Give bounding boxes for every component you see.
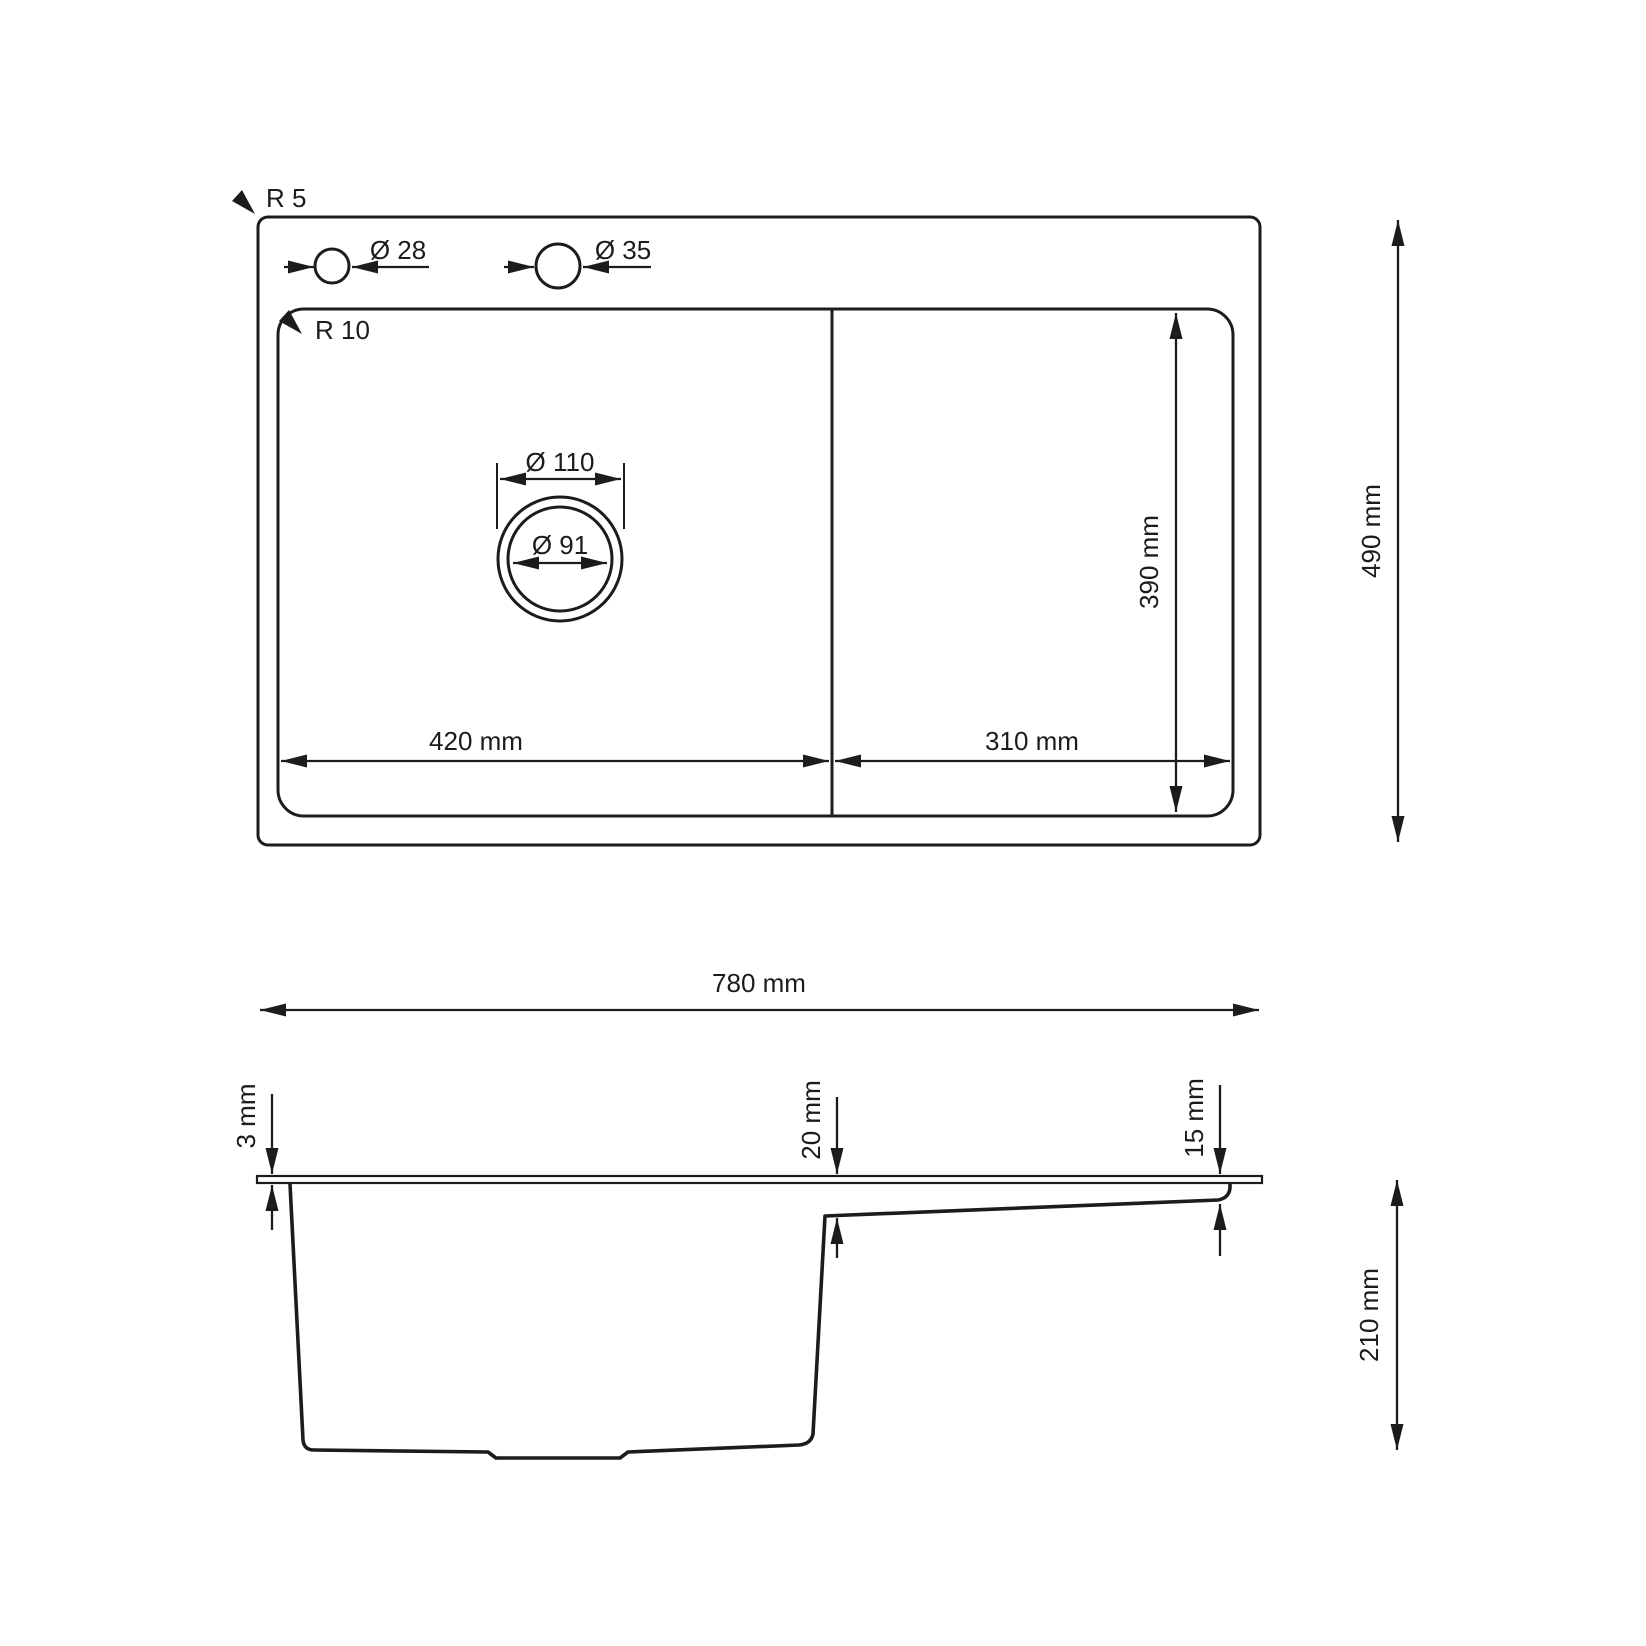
- sink-outer-rect: [258, 217, 1260, 845]
- step-depth-right-label: 15 mm: [1179, 1078, 1209, 1157]
- faucet-hole-small-label: Ø 28: [370, 235, 426, 265]
- outer-corner-radius-label: R 5: [266, 183, 306, 213]
- sink-inner-basin-rect: [278, 309, 1233, 816]
- sink-technical-drawing-page: R 5 R 10 Ø 28 Ø 35 Ø 110 Ø 91 420 mm 310…: [0, 0, 1646, 1646]
- faucet-hole-large-label: Ø 35: [595, 235, 651, 265]
- faucet-hole-small-circle: [315, 249, 349, 283]
- inner-depth-label: 390 mm: [1134, 515, 1164, 609]
- bowl-height-label: 210 mm: [1354, 1268, 1384, 1362]
- drain-outer-diameter-label: Ø 110: [526, 447, 595, 477]
- side-view: 780 mm 3 mm 20 mm 15 mm 210 mm: [231, 968, 1397, 1458]
- inner-corner-radius-label: R 10: [315, 315, 370, 345]
- rim-thickness-label: 3 mm: [231, 1084, 261, 1149]
- top-view: R 5 R 10 Ø 28 Ø 35 Ø 110 Ø 91 420 mm 310…: [232, 183, 1398, 845]
- faucet-hole-large-circle: [536, 244, 580, 288]
- drain-inner-diameter-label: Ø 91: [532, 530, 588, 560]
- rim-profile: [257, 1176, 1262, 1183]
- bowl-profile-path: [290, 1184, 1230, 1458]
- bowl-width-label: 420 mm: [429, 726, 523, 756]
- corner-radius-outer-pointer-icon: [232, 190, 255, 214]
- corner-radius-inner-pointer-icon: [279, 310, 302, 334]
- step-depth-left-label: 20 mm: [796, 1080, 826, 1159]
- drainboard-width-label: 310 mm: [985, 726, 1079, 756]
- overall-width-label: 780 mm: [712, 968, 806, 998]
- technical-drawing-canvas: R 5 R 10 Ø 28 Ø 35 Ø 110 Ø 91 420 mm 310…: [0, 0, 1646, 1646]
- overall-depth-label: 490 mm: [1356, 484, 1386, 578]
